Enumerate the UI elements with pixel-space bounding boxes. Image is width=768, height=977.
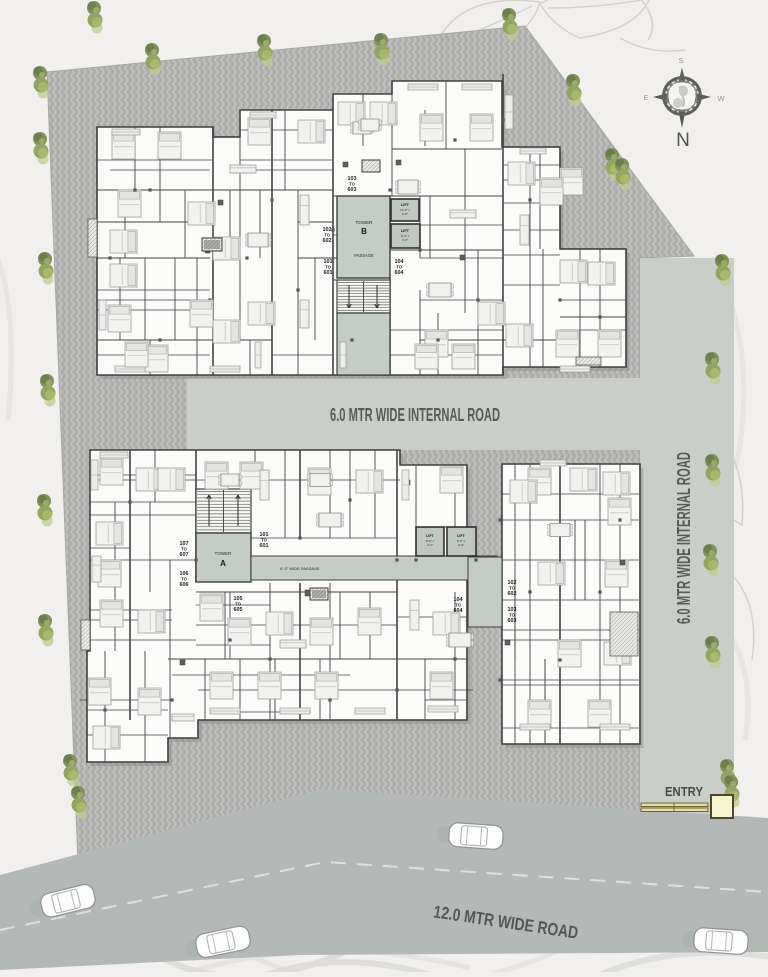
svg-text:4'-0": 4'-0" [427,543,433,547]
svg-text:TOWER: TOWER [355,220,373,225]
svg-text:6.0 MTR WIDE INTERNAL ROAD: 6.0 MTR WIDE INTERNAL ROAD [674,452,694,624]
svg-text:4'-0": 4'-0" [402,238,408,242]
svg-text:S: S [678,56,683,65]
svg-text:LIFT: LIFT [401,203,410,207]
svg-text:6.0 MTR WIDE INTERNAL ROAD: 6.0 MTR WIDE INTERNAL ROAD [330,405,500,425]
svg-text:TOWER: TOWER [214,551,232,556]
svg-text:4'-0": 4'-0" [458,543,464,547]
svg-text:E: E [643,93,648,102]
svg-text:LIFT: LIFT [401,229,410,233]
svg-text:A: A [220,559,226,568]
svg-text:B: B [361,227,367,236]
svg-text:6'-0" WIDE PASSAGE: 6'-0" WIDE PASSAGE [280,566,320,571]
svg-text:PASSAGE: PASSAGE [354,253,374,258]
svg-text:N: N [676,130,690,151]
svg-text:ENTRY: ENTRY [665,784,703,799]
svg-text:LIFT: LIFT [426,534,435,538]
svg-text:LIFT: LIFT [457,534,466,538]
svg-text:W: W [717,94,725,103]
svg-text:6'-8": 6'-8" [402,212,408,216]
